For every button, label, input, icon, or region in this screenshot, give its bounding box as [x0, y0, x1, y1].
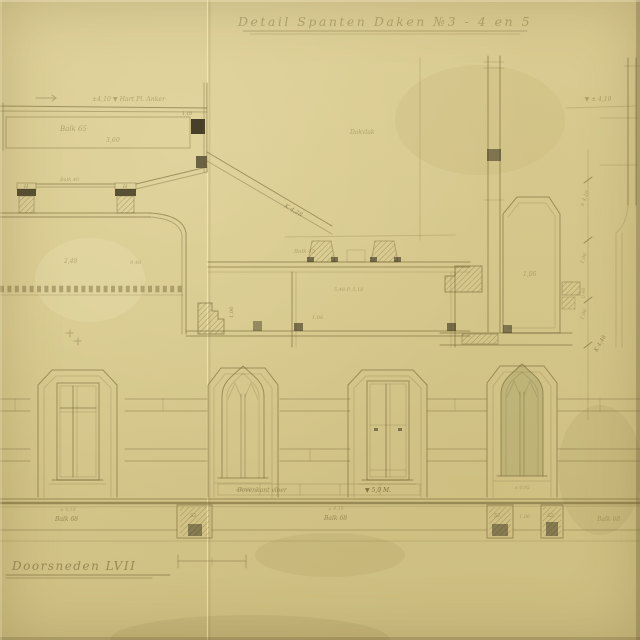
truss-left: H H Balk 40 K 4,28 2,48 8,48 [0, 152, 332, 345]
beam-label: Balk 68 [54, 516, 78, 523]
roof-note: Dakvlak [349, 129, 375, 136]
pier-dim: 52 [190, 513, 196, 519]
dim-label: ± 4,10 [60, 507, 76, 513]
dim-label: 1,06 [229, 306, 235, 318]
dim-label: 1,06 [312, 315, 324, 321]
dim-label: 8,48 [130, 260, 141, 266]
dim-label: 3,60 [106, 137, 120, 144]
beam-label: Balk 65 [59, 125, 87, 133]
top-left-beam: ±4,10 ▼ Hart Pl. Anker Balk 65 3,60 1,10 [0, 83, 207, 172]
drawing-title: Detail Spanten Daken №3 - 4 en 5 [237, 14, 532, 29]
dim-chain-label: ± 4,10 [579, 189, 591, 208]
masonry-note: 5,48 P. 5,18 [334, 287, 363, 293]
section-title: Doorsneden LVII [11, 559, 136, 573]
pier-dim: 52 [547, 513, 553, 519]
floor-level: Bovenkant vloer ▼ 5,0 M. [0, 484, 640, 507]
rafter-dim: K 4,28 [282, 202, 304, 219]
dim-chain-label: K 4,48 [593, 334, 608, 354]
architectural-drawing: Detail Spanten Daken №3 - 4 en 5 ±4,10 ▼… [0, 0, 640, 640]
window-2-gothic: ± 0,95 [208, 366, 278, 497]
beam-label: Balk 40 [59, 177, 80, 183]
drawing-sheet: Detail Spanten Daken №3 - 4 en 5 ±4,10 ▼… [0, 0, 640, 640]
dim-label: 2,48 [63, 258, 78, 265]
title-block: Detail Spanten Daken №3 - 4 en 5 [237, 14, 532, 34]
paper-stains [35, 65, 640, 640]
dim-label: ± 4,10 [328, 506, 344, 512]
dim-label: 0,48 [581, 288, 587, 298]
beam-label: Balk 68 [323, 515, 347, 522]
level-annotation: ±4,10 ▼ Hart Pl. Anker [92, 96, 166, 103]
dim-label: 1,10 [182, 111, 192, 117]
dim-label: 1,06 [523, 271, 537, 278]
beam-label: Balk 45 [293, 249, 316, 255]
dim-label: 1,06 [519, 514, 531, 520]
level-annotation: ▼ ± 4,10 [585, 96, 612, 103]
window-3-door [348, 370, 427, 497]
window-4-gothic: ± 0,95 [487, 364, 557, 497]
beam-label: Balk 68 [596, 516, 620, 523]
floor-label: Bovenkant vloer [236, 487, 288, 494]
sill-dim: ± 0,95 [514, 485, 530, 491]
window-1-door [38, 370, 117, 497]
pier-dim: 52 [494, 513, 500, 519]
floor-level-value: ▼ 5,0 M. [365, 487, 391, 494]
